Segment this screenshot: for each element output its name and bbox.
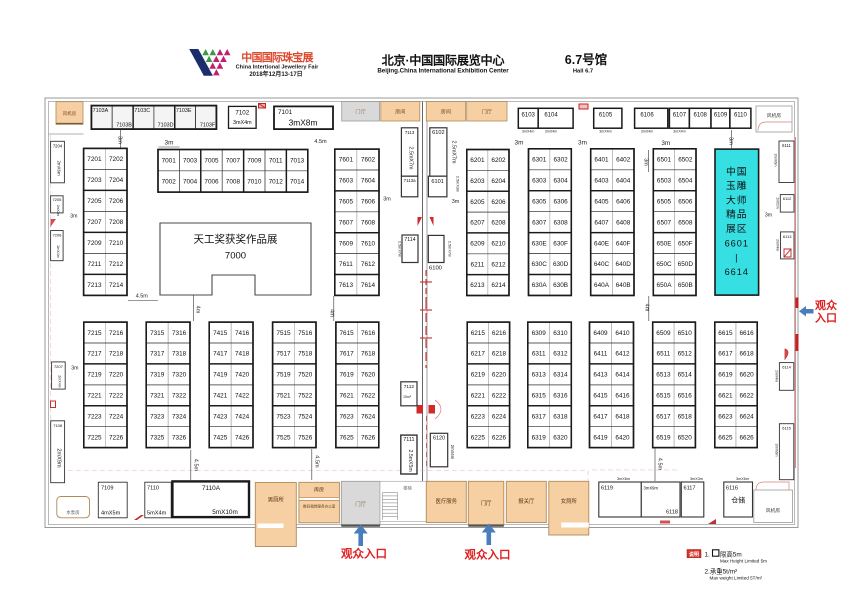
svg-text:6511: 6511 [657,351,671,358]
svg-text:Max weight Limited 5T/m²: Max weight Limited 5T/m² [710,576,763,581]
svg-text:7208: 7208 [109,219,124,226]
svg-text:3mX4m: 3mX4m [545,129,557,133]
svg-text:6312: 6312 [553,351,568,358]
svg-text:7615: 7615 [339,330,354,337]
svg-text:7515: 7515 [276,330,291,337]
svg-text:6111: 6111 [782,143,791,148]
svg-text:7525: 7525 [276,434,291,441]
svg-text:7205: 7205 [52,197,62,202]
svg-text:医疗服务: 医疗服务 [436,497,458,505]
svg-text:6308: 6308 [553,219,568,226]
svg-text:Max Height Limited 5m: Max Height Limited 5m [720,559,767,564]
svg-text:6302: 6302 [553,157,568,164]
svg-text:6226: 6226 [492,434,507,441]
svg-text:6112: 6112 [783,196,792,201]
svg-text:7013: 7013 [290,157,305,164]
svg-text:报关厅: 报关厅 [518,497,535,505]
svg-text:7604: 7604 [361,178,376,185]
svg-text:5mX10m: 5mX10m [212,509,238,516]
svg-text:6104: 6104 [544,113,558,119]
svg-text:6617: 6617 [718,351,733,358]
svg-text:6222: 6222 [492,393,507,400]
svg-text:7609: 7609 [339,240,354,247]
svg-text:7523: 7523 [276,413,291,420]
svg-text:6310: 6310 [553,330,568,337]
svg-text:7109: 7109 [101,486,113,492]
svg-text:6406: 6406 [616,198,631,205]
svg-text:7205: 7205 [87,198,102,205]
svg-text:7217: 7217 [87,351,102,358]
svg-text:6217: 6217 [471,351,486,358]
svg-text:2mX4m: 2mX4m [56,245,60,257]
svg-text:7517: 7517 [276,351,291,358]
svg-text:展区: 展区 [726,223,748,235]
svg-text:7220: 7220 [109,372,124,379]
svg-text:6306: 6306 [553,198,568,205]
svg-text:门厅: 门厅 [355,108,365,116]
svg-text:7223: 7223 [87,413,102,420]
svg-text:3mX6m: 3mX6m [617,477,630,481]
svg-text:门厅: 门厅 [481,499,492,507]
svg-text:650B: 650B [678,282,693,289]
svg-text:6315: 6315 [532,393,547,400]
svg-text:4.5m: 4.5m [136,294,148,300]
svg-text:630D: 630D [553,261,569,268]
svg-text:2mX2m: 2mX2m [56,205,60,216]
svg-text:风机房: 风机房 [63,110,77,117]
svg-text:6412: 6412 [615,351,630,358]
svg-text:6411: 6411 [594,351,608,358]
svg-text:6620: 6620 [739,372,754,379]
svg-text:数码租赁服务办公室: 数码租赁服务办公室 [303,504,336,509]
svg-text:7415: 7415 [213,330,228,337]
svg-text:6224: 6224 [492,413,507,420]
svg-text:7102: 7102 [235,110,249,117]
svg-text:7522: 7522 [298,393,313,400]
svg-text:6223: 6223 [471,413,486,420]
svg-text:6103: 6103 [522,113,536,119]
svg-text:2mX4m: 2mX4m [775,370,779,382]
svg-text:7601: 7601 [339,157,354,164]
svg-text:630C: 630C [532,261,548,268]
svg-text:2mX9m: 2mX9m [56,448,62,468]
svg-text:7526: 7526 [298,434,313,441]
svg-text:7204: 7204 [109,177,124,184]
svg-text:6206: 6206 [491,199,506,206]
svg-text:7516: 7516 [298,330,313,337]
svg-text:6517: 6517 [656,413,671,420]
svg-text:630F: 630F [553,240,568,247]
svg-text:7111: 7111 [403,437,414,443]
svg-text:3m: 3m [383,197,391,203]
svg-text:6416: 6416 [615,393,630,400]
svg-text:6413: 6413 [593,372,608,379]
svg-text:6626: 6626 [739,434,754,441]
svg-text:6616: 6616 [739,330,754,337]
svg-text:2.5mX7m: 2.5mX7m [450,140,456,164]
svg-text:3m: 3m [70,214,77,220]
svg-text:3mX4m: 3mX4m [673,129,685,133]
svg-text:7422: 7422 [235,393,250,400]
svg-text:7315: 7315 [150,330,165,337]
svg-text:7214: 7214 [109,282,124,289]
svg-text:7006: 7006 [204,179,219,186]
svg-text:7318: 7318 [172,351,187,358]
svg-text:7203: 7203 [87,177,102,184]
svg-text:7010: 7010 [247,179,262,186]
svg-text:6419: 6419 [593,434,608,441]
svg-text:6218: 6218 [492,351,507,358]
svg-text:3m: 3m [165,140,174,147]
svg-text:640A: 640A [594,282,610,289]
svg-text:6407: 6407 [594,219,609,226]
svg-text:7320: 7320 [172,372,187,379]
svg-text:3mX6m: 3mX6m [736,477,749,481]
svg-text:精品: 精品 [726,208,748,221]
svg-text:6102: 6102 [432,130,444,136]
svg-text:7206: 7206 [52,233,62,238]
svg-text:6401: 6401 [594,157,609,164]
svg-text:3m: 3m [578,140,587,147]
svg-text:2.5mX7m: 2.5mX7m [398,241,402,257]
svg-text:6502: 6502 [678,157,693,164]
svg-text:7420: 7420 [235,372,250,379]
svg-text:7224: 7224 [109,413,124,420]
svg-text:7421: 7421 [213,393,228,400]
svg-text:6203: 6203 [470,178,485,185]
svg-text:6403: 6403 [594,177,609,184]
svg-text:7425: 7425 [213,434,228,441]
svg-text:7621: 7621 [339,393,354,400]
svg-text:7614: 7614 [361,282,376,289]
svg-text:6113: 6113 [783,234,792,239]
svg-text:China Intertional Jewellery Fa: China Intertional Jewellery Fair [236,65,320,71]
svg-text:2.5mX7m: 2.5mX7m [448,241,452,257]
svg-text:6309: 6309 [532,330,547,337]
svg-text:7011: 7011 [269,157,283,164]
svg-text:7317: 7317 [150,351,165,358]
svg-text:7003: 7003 [183,157,198,164]
svg-text:6117: 6117 [684,486,696,492]
svg-text:3mX3m: 3mX3m [690,477,703,481]
svg-text:风机房: 风机房 [767,112,782,119]
svg-text:大师: 大师 [726,193,748,206]
svg-text:6402: 6402 [616,157,631,164]
svg-text:7103C: 7103C [134,108,150,114]
svg-text:3m: 3m [71,366,78,372]
svg-text:650C: 650C [656,261,672,268]
svg-text:7206: 7206 [109,198,124,205]
svg-text:7613: 7613 [339,282,354,289]
svg-text:女厕所: 女厕所 [561,497,578,505]
svg-text:6625: 6625 [718,434,733,441]
svg-text:7519: 7519 [276,372,291,379]
svg-text:7619: 7619 [339,372,354,379]
svg-text:6207: 6207 [470,220,485,227]
svg-text:6118: 6118 [666,510,678,516]
svg-text:3m: 3m [661,140,670,147]
svg-text:6320: 6320 [553,434,568,441]
svg-text:7202: 7202 [109,156,124,163]
svg-text:7221: 7221 [87,393,102,400]
svg-text:入口: 入口 [815,312,837,325]
svg-text:说明: 说明 [689,551,699,558]
svg-text:3m: 3m [117,136,123,144]
svg-text:6420: 6420 [615,434,630,441]
svg-text:6506: 6506 [678,198,693,205]
svg-text:7113: 7113 [405,130,415,135]
svg-text:3mX4m: 3mX4m [233,120,252,126]
svg-text:7521: 7521 [276,393,291,400]
svg-text:7226: 7226 [109,434,124,441]
svg-text:640C: 640C [594,261,610,268]
svg-text:2.5mX7m: 2.5mX7m [408,146,414,170]
svg-text:6418: 6418 [615,413,630,420]
svg-text:6501: 6501 [657,157,672,164]
svg-text:观众: 观众 [815,298,838,312]
svg-text:7520: 7520 [298,372,313,379]
svg-text:7326: 7326 [172,434,187,441]
svg-text:7624: 7624 [361,413,376,420]
svg-text:7209: 7209 [87,240,102,247]
svg-text:6519: 6519 [656,434,671,441]
svg-text:7626: 7626 [361,434,376,441]
svg-text:6520: 6520 [678,434,693,441]
svg-text:6404: 6404 [616,177,631,184]
svg-text:6204: 6204 [491,178,506,185]
svg-text:7008: 7008 [226,179,241,186]
svg-text:Beijing.China International Ex: Beijing.China International Exhibition C… [377,67,509,74]
svg-text:2mX4m: 2mX4m [57,375,61,387]
svg-text:7211: 7211 [88,261,102,268]
svg-text:7110A: 7110A [202,485,221,492]
svg-text:房间: 房间 [441,108,451,116]
svg-text:7612: 7612 [361,261,376,268]
svg-text:7222: 7222 [109,393,124,400]
svg-text:7112: 7112 [404,384,415,390]
svg-text:7007: 7007 [226,157,241,164]
svg-text:6202: 6202 [491,157,506,164]
svg-text:6318: 6318 [553,413,568,420]
svg-text:7213: 7213 [87,282,102,289]
svg-text:6114: 6114 [782,365,791,370]
svg-text:仓储: 仓储 [731,496,745,505]
svg-text:6100: 6100 [429,266,442,272]
svg-text:6221: 6221 [471,393,486,400]
svg-text:6614: 6614 [725,267,749,277]
svg-text:2mX6m: 2mX6m [775,443,779,456]
svg-text:7602: 7602 [361,157,376,164]
svg-text:6106: 6106 [640,113,654,119]
svg-text:6514: 6514 [678,372,693,379]
svg-text:4.5m: 4.5m [193,459,199,472]
svg-text:2018年12月13-17日: 2018年12月13-17日 [249,70,302,78]
svg-text:6515: 6515 [656,393,671,400]
svg-text:640E: 640E [594,240,609,247]
svg-text:6415: 6415 [593,393,608,400]
svg-text:7001: 7001 [162,157,177,164]
svg-text:6512: 6512 [678,351,693,358]
svg-text:7623: 7623 [339,413,354,420]
svg-text:|: | [735,253,738,263]
svg-text:风机房: 风机房 [766,507,781,514]
svg-text:650D: 650D [678,261,694,268]
svg-text:2mX6m: 2mX6m [450,445,455,460]
svg-text:4.5m: 4.5m [314,455,320,468]
svg-text:4.5m: 4.5m [314,139,327,145]
svg-text:7005: 7005 [204,157,219,164]
svg-text:观众入口: 观众入口 [341,547,387,561]
svg-text:3mX8m: 3mX8m [289,118,318,128]
svg-text:6210: 6210 [491,241,506,248]
svg-text:6513: 6513 [656,372,671,379]
svg-text:6409: 6409 [593,330,608,337]
svg-text:6109: 6109 [714,113,728,119]
svg-text:6205: 6205 [470,199,485,206]
svg-text:7002: 7002 [162,179,177,186]
svg-text:3mX4m: 3mX4m [641,129,653,133]
svg-text:2.5mX3m: 2.5mX3m [455,176,459,192]
svg-text:6414: 6414 [615,372,630,379]
svg-text:3m: 3m [728,137,734,145]
svg-text:6215: 6215 [471,330,486,337]
svg-text:7012: 7012 [269,179,284,186]
svg-text:观众入口: 观众入口 [465,548,511,562]
svg-text:6208: 6208 [491,220,506,227]
svg-text:6107: 6107 [673,113,687,119]
svg-text:6510: 6510 [678,330,693,337]
svg-text:中国: 中国 [726,165,748,178]
svg-text:7103A: 7103A [93,108,109,114]
svg-text:7322: 7322 [172,393,187,400]
svg-text:7524: 7524 [298,413,313,420]
svg-text:7101: 7101 [278,109,293,116]
svg-text:7416: 7416 [235,330,250,337]
svg-text:6516: 6516 [678,393,693,400]
svg-text:7418: 7418 [235,351,250,358]
svg-text:6216: 6216 [492,330,507,337]
svg-text:6621: 6621 [718,393,733,400]
svg-text:7219: 7219 [87,372,102,379]
svg-text:6615: 6615 [718,330,733,337]
svg-text:6116: 6116 [726,486,738,492]
svg-text:北京·中国国际展览中心: 北京·中国国际展览中心 [382,53,506,68]
svg-text:6105: 6105 [599,113,613,119]
svg-text:门厅: 门厅 [355,500,366,508]
svg-text:7316: 7316 [172,330,187,337]
svg-text:3mX9m: 3mX9m [644,486,659,491]
svg-text:6314: 6314 [553,372,568,379]
svg-text:630E: 630E [532,240,547,247]
svg-text:6410: 6410 [615,330,630,337]
svg-text:6405: 6405 [594,198,609,205]
svg-text:6211: 6211 [471,261,485,268]
svg-text:6408: 6408 [616,219,631,226]
svg-text:6115: 6115 [782,426,791,431]
svg-text:7607: 7607 [339,219,354,226]
svg-text:7618: 7618 [361,351,376,358]
svg-text:7608: 7608 [361,219,376,226]
svg-text:630A: 630A [532,282,548,289]
svg-text:6301: 6301 [532,157,547,164]
svg-text:3m: 3m [765,213,772,219]
svg-text:7000: 7000 [225,251,246,262]
svg-text:玉雕: 玉雕 [726,179,748,192]
svg-text:6518: 6518 [678,413,693,420]
svg-text:7423: 7423 [213,413,228,420]
svg-text:房间: 房间 [395,108,405,116]
svg-text:7603: 7603 [339,178,354,185]
svg-text:6509: 6509 [656,330,671,337]
svg-text:7103D: 7103D [158,123,174,129]
svg-text:7004: 7004 [183,179,198,186]
svg-text:7424: 7424 [235,413,250,420]
svg-text:6624: 6624 [739,413,754,420]
svg-text:6503: 6503 [657,177,672,184]
svg-text:7319: 7319 [150,372,165,379]
svg-text:7605: 7605 [339,199,354,206]
svg-text:7417: 7417 [213,351,228,358]
svg-text:7114: 7114 [404,237,415,243]
svg-text:7622: 7622 [361,393,376,400]
svg-text:7625: 7625 [339,434,354,441]
svg-text:限高5m: 限高5m [720,550,742,559]
svg-text:6601: 6601 [725,238,749,248]
svg-text:6212: 6212 [491,261,506,268]
svg-text:7419: 7419 [213,372,228,379]
svg-text:6317: 6317 [532,413,547,420]
svg-text:7215: 7215 [87,330,102,337]
svg-text:1.: 1. [705,552,711,559]
svg-text:2mX4m: 2mX4m [776,239,780,251]
svg-text:6311: 6311 [532,351,546,358]
svg-text:6622: 6622 [739,393,754,400]
svg-text:7617: 7617 [339,351,354,358]
svg-text:6110: 6110 [734,113,748,119]
svg-text:3m: 3m [515,140,524,147]
svg-text:6108: 6108 [694,113,708,119]
svg-text:4mX5m: 4mX5m [101,511,121,517]
svg-text:3m: 3m [452,199,460,205]
svg-text:2mX6m: 2mX6m [774,153,778,166]
svg-text:7518: 7518 [298,351,313,358]
svg-text:6209: 6209 [470,241,485,248]
svg-text:7103E: 7103E [176,108,192,114]
svg-text:7324: 7324 [172,413,187,420]
svg-text:6505: 6505 [657,198,672,205]
svg-text:6305: 6305 [532,198,547,205]
svg-text:2mX2m: 2mX2m [776,198,780,209]
svg-text:2mX6m: 2mX6m [57,161,62,176]
svg-text:6119: 6119 [601,486,613,492]
svg-text:6219: 6219 [471,372,486,379]
svg-text:6507: 6507 [657,219,672,226]
svg-text:6201: 6201 [470,157,485,164]
svg-text:5mX4m: 5mX4m [147,511,167,517]
svg-text:640B: 640B [616,282,631,289]
svg-text:7216: 7216 [109,330,124,337]
svg-text:7110: 7110 [147,486,159,492]
svg-text:7201: 7201 [87,156,102,163]
svg-text:3mX4m: 3mX4m [522,129,534,133]
svg-text:650A: 650A [657,282,673,289]
svg-text:中国国际珠宝展: 中国国际珠宝展 [241,50,314,64]
svg-text:7108: 7108 [53,423,63,428]
svg-text:Hall 6.7: Hall 6.7 [573,69,593,75]
svg-text:630B: 630B [553,282,568,289]
svg-text:7323: 7323 [150,413,165,420]
svg-text:6307: 6307 [532,219,547,226]
